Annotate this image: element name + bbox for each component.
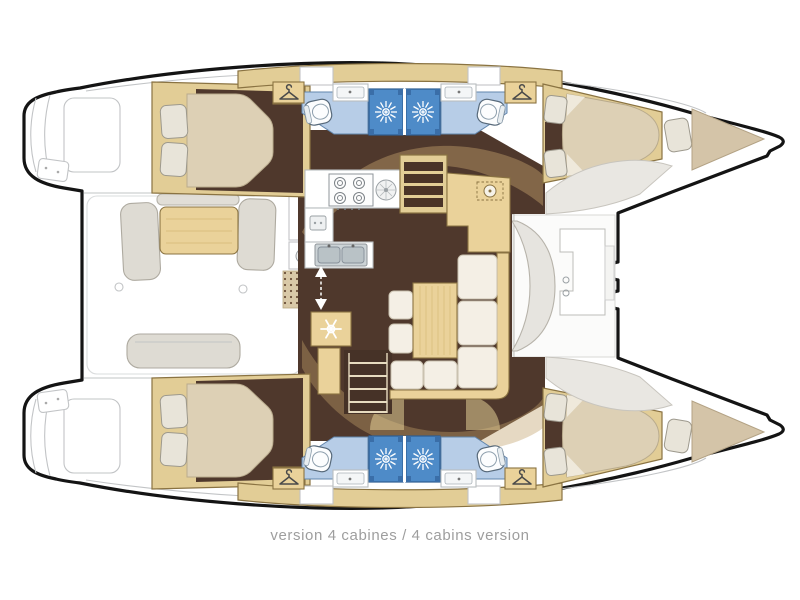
stool-cushion bbox=[389, 291, 413, 319]
locker-hatch bbox=[468, 67, 500, 85]
dinette-table bbox=[413, 283, 457, 358]
shower-corner bbox=[398, 129, 403, 135]
sofa-cushion bbox=[458, 255, 497, 299]
galley-cabinet bbox=[318, 348, 340, 394]
shower-corner bbox=[369, 89, 374, 95]
sofa-cushion bbox=[458, 347, 497, 388]
shower-corner bbox=[398, 89, 403, 95]
shower-stall bbox=[369, 89, 403, 135]
oven bbox=[310, 216, 326, 230]
cockpit-seat-back bbox=[157, 194, 239, 205]
stool-cushion bbox=[389, 324, 413, 353]
fridge bbox=[311, 312, 351, 346]
cockpit-seat bbox=[120, 202, 161, 281]
locker-hatch bbox=[300, 67, 333, 85]
round-sink bbox=[376, 180, 396, 200]
pillow bbox=[663, 117, 692, 153]
pillow bbox=[160, 142, 188, 177]
stove bbox=[329, 174, 373, 210]
caption: version 4 cabines / 4 cabins version bbox=[0, 527, 800, 544]
cockpit-bench bbox=[127, 334, 240, 368]
sofa-cushion bbox=[458, 301, 497, 345]
shower-corner bbox=[369, 129, 374, 135]
cockpit-seat bbox=[237, 198, 276, 270]
pillow bbox=[543, 95, 567, 124]
crossbeam-step bbox=[605, 246, 614, 300]
catamaran-floorplan bbox=[0, 0, 800, 600]
companionway-stairs-starboard bbox=[344, 350, 392, 414]
companionway-stairs-port bbox=[400, 155, 447, 213]
galley-sink bbox=[315, 244, 367, 266]
faucet bbox=[349, 91, 352, 94]
sofa-cushion bbox=[424, 361, 457, 389]
pillow bbox=[543, 149, 567, 178]
sofa-cushion bbox=[391, 361, 423, 389]
floorplan-canvas: version 4 cabines / 4 cabins version bbox=[0, 0, 800, 600]
forward-cockpit bbox=[507, 214, 615, 358]
pillow bbox=[160, 104, 188, 139]
cockpit-table bbox=[160, 207, 238, 254]
